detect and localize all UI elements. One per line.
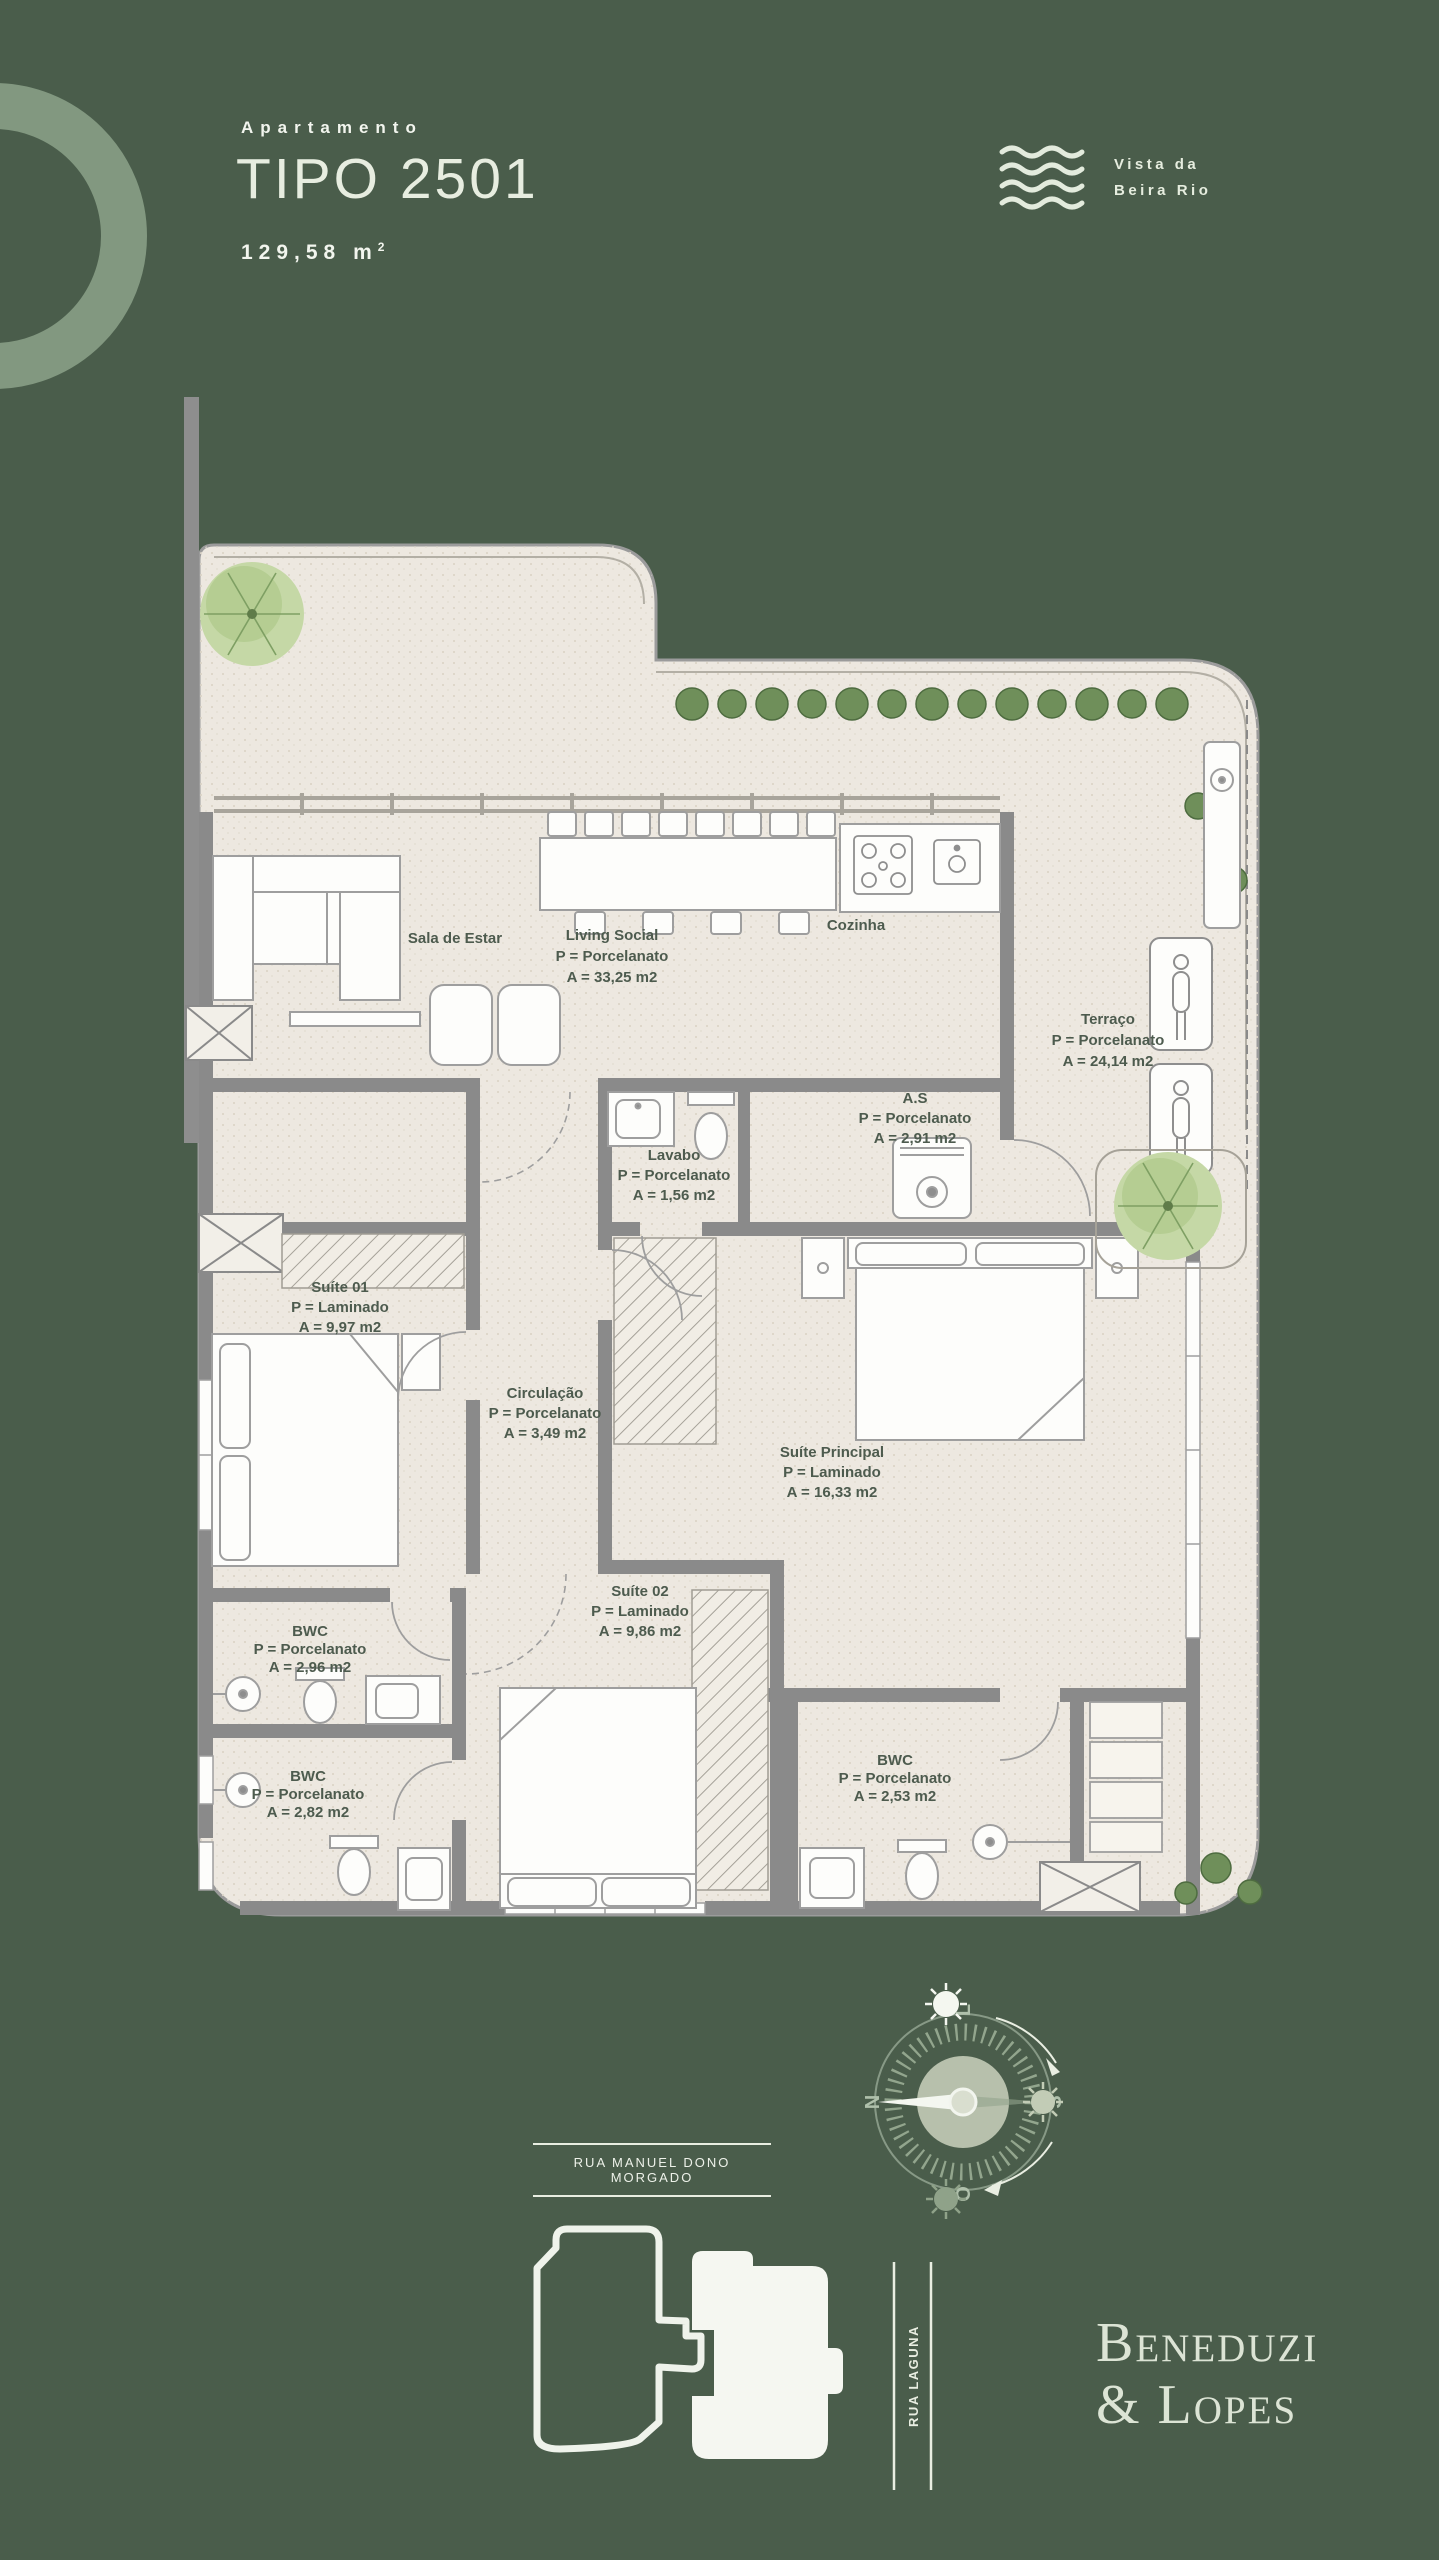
kitchen-counter [840, 824, 1000, 912]
label-bwc2: BWC [290, 1768, 326, 1785]
svg-text:P = Porcelanato: P = Porcelanato [489, 1405, 602, 1422]
building-highlighted-tower [692, 2251, 843, 2459]
label-bwc3: BWC [877, 1752, 913, 1769]
cabinets [1090, 1702, 1162, 1852]
svg-text:P = Porcelanato: P = Porcelanato [556, 948, 669, 965]
svg-text:P = Porcelanato: P = Porcelanato [839, 1770, 952, 1787]
waves-icon [998, 144, 1090, 212]
label-bwc1: BWC [292, 1623, 328, 1640]
svg-text:P = Laminado: P = Laminado [591, 1603, 689, 1620]
sun-bright-icon [925, 1983, 967, 2025]
svg-text:A = 1,56 m2: A = 1,56 m2 [633, 1187, 715, 1204]
label-suite01: Suíte 01 [311, 1279, 369, 1296]
svg-text:P = Porcelanato: P = Porcelanato [252, 1786, 365, 1803]
label-lavabo: Lavabo [648, 1147, 701, 1164]
svg-text:A = 2,53 m2: A = 2,53 m2 [854, 1788, 936, 1805]
label-suite02: Suíte 02 [611, 1583, 669, 1600]
svg-text:A = 3,49 m2: A = 3,49 m2 [504, 1425, 586, 1442]
label-living: Living Social [566, 927, 659, 944]
decorative-ring [0, 106, 124, 366]
washer-icon [893, 1138, 971, 1218]
svg-text:P = Porcelanato: P = Porcelanato [254, 1641, 367, 1658]
street-side: RUA LAGUNA [894, 2262, 931, 2490]
svg-text:A = 2,91 m2: A = 2,91 m2 [874, 1130, 956, 1147]
svg-text:P = Laminado: P = Laminado [291, 1299, 389, 1316]
svg-text:A = 2,82 m2: A = 2,82 m2 [267, 1804, 349, 1821]
label-circulacao: Circulação [507, 1385, 584, 1402]
building-outline-tower [537, 2229, 701, 2449]
svg-text:A = 33,25 m2: A = 33,25 m2 [567, 969, 658, 986]
svg-text:P = Porcelanato: P = Porcelanato [1052, 1032, 1165, 1049]
label-as: A.S [902, 1090, 927, 1107]
label-sala: Sala de Estar [408, 930, 502, 947]
brand-logo: Beneduzi & Lopes [1096, 2312, 1318, 2436]
svg-text:A = 2,96 m2: A = 2,96 m2 [269, 1659, 351, 1676]
svg-text:A = 16,33 m2: A = 16,33 m2 [787, 1484, 878, 1501]
label-cozinha: Cozinha [827, 917, 886, 934]
suite02-bed [500, 1688, 696, 1908]
view-badge-text: Vista da Beira Rio [1114, 152, 1211, 204]
svg-text:P = Porcelanato: P = Porcelanato [859, 1110, 972, 1127]
compass-n: N [862, 2095, 884, 2109]
label-suite-principal: Suíte Principal [780, 1444, 884, 1461]
tree-icon [200, 562, 304, 666]
compass-rose: N L S O [862, 1983, 1066, 2219]
brand-line2: & Lopes [1096, 2374, 1318, 2436]
floor-plan-poster: Sala de Estar Living Social P = Porcelan… [0, 0, 1439, 2560]
floor-plan-drawing: Sala de Estar Living Social P = Porcelan… [184, 397, 1262, 1915]
apartment-eyebrow: Apartamento [241, 118, 423, 138]
svg-text:P = Laminado: P = Laminado [783, 1464, 881, 1481]
brand-line1: Beneduzi [1096, 2312, 1318, 2374]
sun-dim-icon [926, 2179, 966, 2219]
svg-text:A = 9,86 m2: A = 9,86 m2 [599, 1623, 681, 1640]
apartment-title: TIPO 2501 [236, 146, 539, 212]
street-side-label: RUA LAGUNA [906, 2325, 921, 2427]
svg-text:P = Porcelanato: P = Porcelanato [618, 1167, 731, 1184]
label-terraco: Terraço [1081, 1011, 1135, 1028]
view-badge: Vista da Beira Rio [998, 144, 1211, 212]
apartment-area: 129,58 m2 [241, 240, 384, 265]
terrace-bar [1204, 742, 1240, 928]
site-plan: RUA LAGUNA [537, 2229, 931, 2490]
sun-mid-icon [1023, 2082, 1063, 2122]
svg-text:A = 24,14 m2: A = 24,14 m2 [1063, 1053, 1154, 1070]
svg-text:A = 9,97 m2: A = 9,97 m2 [299, 1319, 381, 1336]
street-bottom-label: RUA MANUEL DONO MORGADO [533, 2143, 771, 2197]
